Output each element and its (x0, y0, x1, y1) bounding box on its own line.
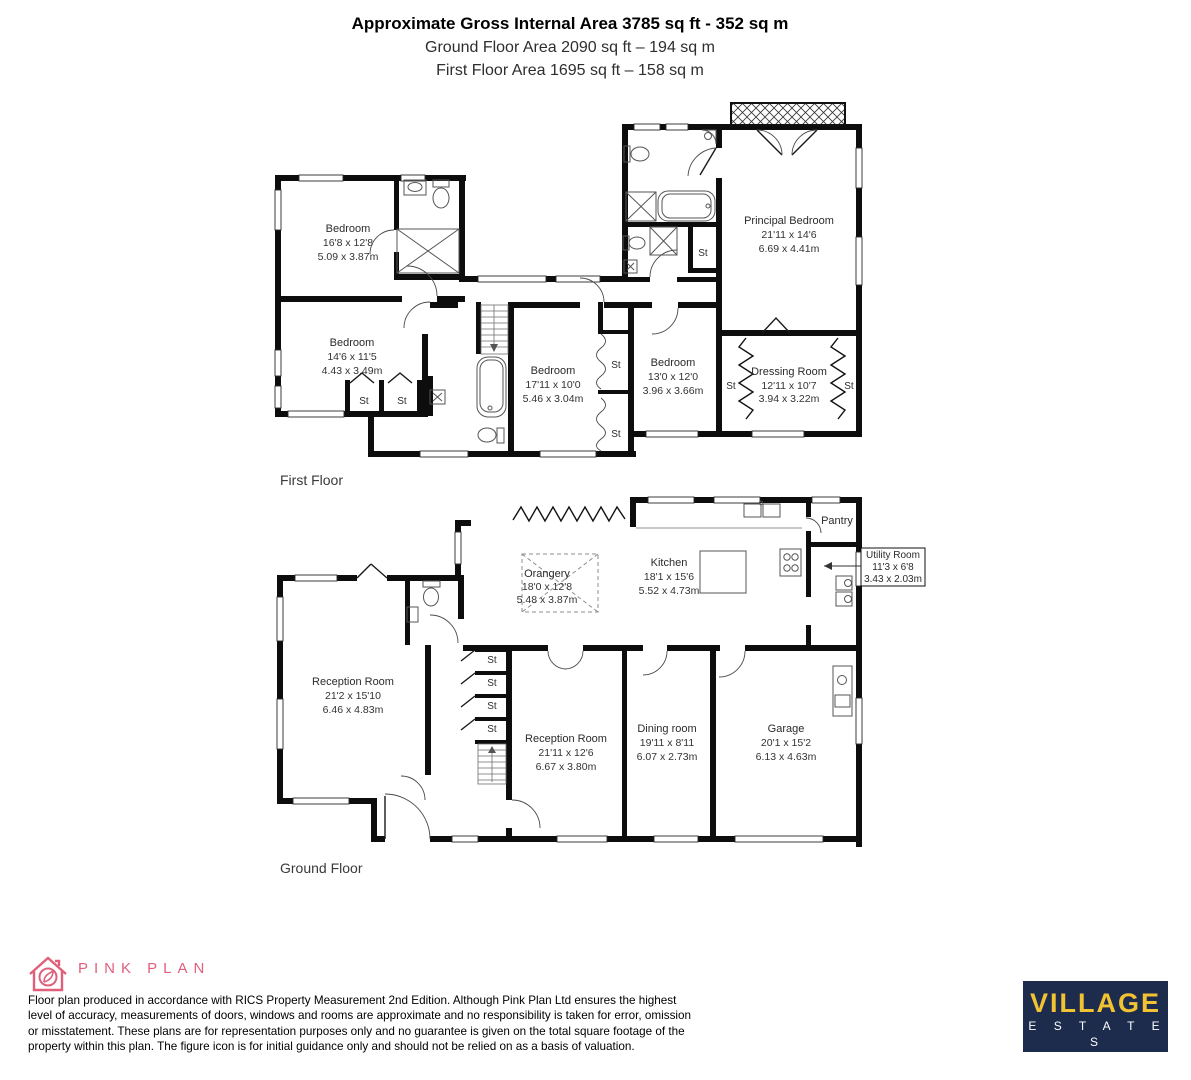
floorplan-page: Approximate Gross Internal Area 3785 sq … (0, 0, 1191, 1080)
storage-label: St (611, 429, 621, 440)
svg-text:11'3 x 6'8: 11'3 x 6'8 (872, 562, 914, 573)
pink-plan-logo-icon (26, 948, 70, 994)
svg-text:21'2 x 15'10: 21'2 x 15'10 (325, 690, 381, 702)
svg-text:5.48 x 3.87m: 5.48 x 3.87m (517, 594, 578, 606)
sink-icon (744, 501, 780, 517)
bath-icon (658, 191, 715, 221)
svg-text:6.69 x 4.41m: 6.69 x 4.41m (759, 243, 820, 255)
storage-label: St (611, 360, 621, 371)
svg-text:6.07 x 2.73m: 6.07 x 2.73m (637, 751, 698, 763)
open-wall-zigzag (513, 507, 625, 521)
hob-icon (780, 549, 801, 576)
shower-icon (650, 227, 677, 255)
svg-text:18'0 x 12'8: 18'0 x 12'8 (522, 581, 572, 593)
kitchen-fixtures (636, 501, 852, 716)
room-label: Reception Room (312, 676, 394, 688)
svg-text:3.43 x 2.03m: 3.43 x 2.03m (864, 574, 922, 585)
room-label: Garage (768, 723, 805, 735)
storage-label: St (487, 701, 497, 712)
storage-label: St (397, 396, 407, 407)
toilet-icon (423, 581, 440, 606)
storage-label: St (487, 724, 497, 735)
balcony-hatch (731, 103, 845, 125)
utility-label-box: Utility Room 11'3 x 6'8 3.43 x 2.03m (824, 548, 925, 586)
shower-icon (397, 229, 459, 273)
room-label: Bedroom (330, 337, 375, 349)
village-logo-line1: VILLAGE (1023, 988, 1168, 1018)
pink-plan-logo-text: PINK PLAN (78, 960, 210, 977)
room-label: Kitchen (651, 557, 688, 569)
village-estates-logo: VILLAGE E S T A T E S (1023, 981, 1168, 1052)
svg-text:19'11 x 8'11: 19'11 x 8'11 (640, 737, 695, 749)
room-label: Reception Room (525, 733, 607, 745)
svg-text:20'1 x 15'2: 20'1 x 15'2 (761, 737, 811, 749)
svg-text:5.46 x 3.04m: 5.46 x 3.04m (523, 393, 584, 405)
svg-text:21'11 x 14'6: 21'11 x 14'6 (761, 229, 816, 241)
room-label: Bedroom (326, 223, 371, 235)
sink-icon (404, 180, 426, 195)
svg-text:3.96 x 3.66m: 3.96 x 3.66m (643, 385, 704, 397)
bath-icon (477, 357, 506, 417)
storage-label: St (698, 248, 708, 259)
kitchen-island (700, 551, 746, 593)
corner-sink-icon (702, 130, 716, 144)
storage-label: St (844, 381, 854, 392)
village-logo-line2: E S T A T E S (1027, 1018, 1168, 1050)
storage-label: St (487, 678, 497, 689)
room-label: Pantry (821, 515, 853, 527)
svg-text:18'1 x 15'6: 18'1 x 15'6 (644, 571, 694, 583)
svg-text:6.67 x 3.80m: 6.67 x 3.80m (536, 761, 597, 773)
toilet-icon (433, 180, 449, 208)
svg-text:6.13 x 4.63m: 6.13 x 4.63m (756, 751, 817, 763)
room-label: Bedroom (531, 365, 576, 377)
garage-unit (833, 666, 852, 716)
first-floor-plan: Bedroom 16'8 x 12'8 5.09 x 3.87m Bedroom… (275, 103, 862, 457)
washing-machine-icon (836, 576, 852, 606)
first-floor-walls (275, 124, 862, 457)
floorplan-drawing: Bedroom 16'8 x 12'8 5.09 x 3.87m Bedroom… (0, 0, 1191, 1080)
toilet-icon (478, 428, 504, 443)
stairs-icon (478, 744, 506, 784)
shower-icon (626, 192, 656, 221)
svg-text:12'11 x 10'7: 12'11 x 10'7 (761, 380, 816, 392)
disclaimer-text: Floor plan produced in accordance with R… (28, 993, 693, 1054)
svg-text:4.43 x 3.49m: 4.43 x 3.49m (322, 365, 383, 377)
svg-text:5.52 x 4.73m: 5.52 x 4.73m (639, 585, 700, 597)
ground-floor-walls (277, 497, 862, 847)
svg-text:13'0 x 12'0: 13'0 x 12'0 (648, 371, 698, 383)
ground-floor-windows (277, 497, 862, 842)
storage-label: St (359, 396, 369, 407)
svg-text:5.09 x 3.87m: 5.09 x 3.87m (318, 251, 379, 263)
room-label: Bedroom (651, 357, 696, 369)
first-floor-room-labels: Bedroom 16'8 x 12'8 5.09 x 3.87m Bedroom… (318, 215, 854, 440)
svg-text:6.46 x 4.83m: 6.46 x 4.83m (323, 704, 384, 716)
svg-text:14'6 x 11'5: 14'6 x 11'5 (327, 351, 377, 363)
room-label: Dressing Room (751, 366, 827, 378)
svg-text:17'11 x 10'0: 17'11 x 10'0 (525, 379, 580, 391)
storage-label: St (726, 381, 736, 392)
ground-floor-label: Ground Floor (280, 860, 362, 876)
room-label: Dining room (637, 723, 696, 735)
svg-text:3.94 x 3.22m: 3.94 x 3.22m (759, 393, 820, 405)
room-label: Utility Room (866, 550, 920, 561)
room-label: Orangery (524, 568, 570, 580)
svg-text:16'8 x 12'8: 16'8 x 12'8 (323, 237, 373, 249)
ground-floor-plan: Utility Room 11'3 x 6'8 3.43 x 2.03m (277, 497, 925, 847)
stairs-icon (481, 305, 508, 354)
storage-label: St (487, 655, 497, 666)
first-floor-label: First Floor (280, 472, 343, 488)
svg-text:21'11 x 12'6: 21'11 x 12'6 (538, 747, 593, 759)
first-floor-windows (275, 124, 862, 457)
room-label: Principal Bedroom (744, 215, 834, 227)
ground-floor-room-labels: Orangery 18'0 x 12'8 5.48 x 3.87m Kitche… (312, 515, 853, 773)
